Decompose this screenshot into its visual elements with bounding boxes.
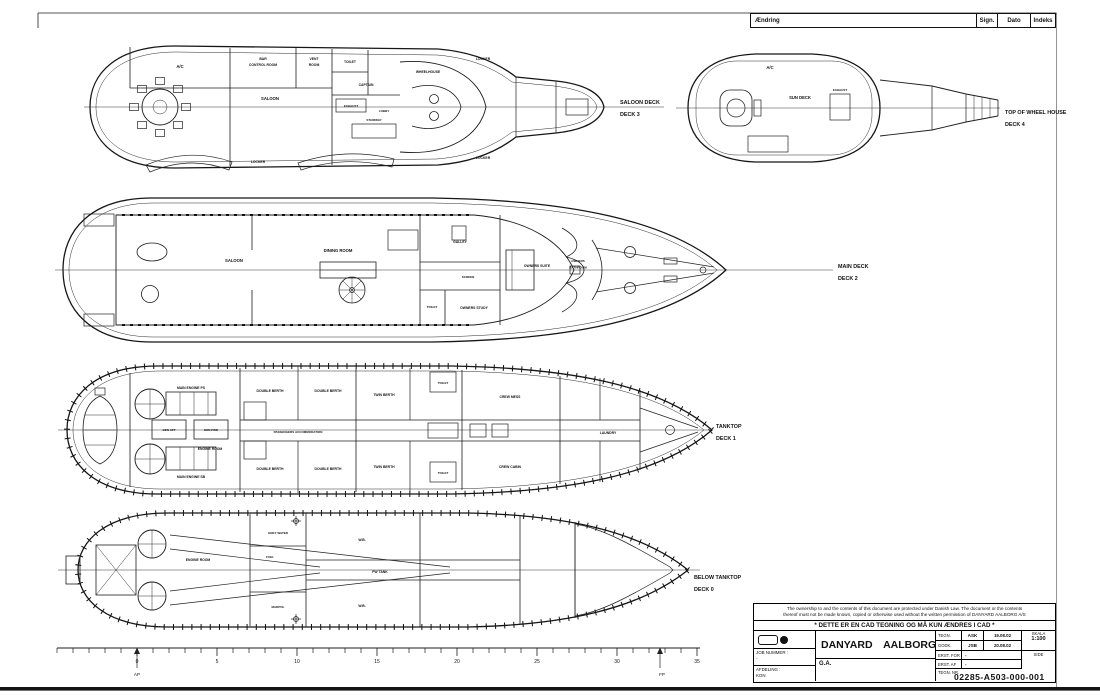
locker-box [470, 424, 486, 437]
deck1-number: DECK 1 [716, 436, 736, 442]
deck4-number: DECK 4 [1005, 122, 1025, 128]
revision-date-header: Dato [997, 14, 1030, 27]
deck3-plan: A/C BAR CONTROL ROOM VENT ROOM SALOON TO… [90, 46, 660, 172]
room-label: CONTROL ROOM [249, 63, 277, 67]
room-label: ENGINE ROOM [186, 558, 211, 562]
ruler-number: 15 [374, 659, 380, 665]
dumbwaiter [452, 226, 466, 240]
room-label: TOILET [427, 305, 438, 309]
ruler-number: 30 [614, 659, 620, 665]
erst-af-value: - [962, 662, 1021, 667]
drawing-number-field: TEGN. NR. 02285-A503-000-001 [936, 669, 1055, 681]
room-label: A/C [176, 64, 183, 69]
tegn-initials: ASK [962, 631, 984, 640]
cabin-toilet [244, 402, 266, 420]
room-label: PASSENGERS ACCOMMODATION [274, 430, 323, 434]
room-label: ENGINE ROOM [198, 447, 223, 451]
room-label: GEN FWD [204, 428, 219, 432]
erst-for-label: ERST. FOR [936, 651, 962, 659]
tank-label: W.B. [358, 604, 365, 608]
room-label: MAIN ENGINE PS [177, 386, 206, 390]
scale-ruler: 0 5 10 15 20 25 30 35 AP FP [57, 648, 700, 678]
deck4-exhaust-casing [830, 94, 850, 120]
title-block: The ownership to and the contents of thi… [753, 603, 1056, 683]
ruler-number: 5 [216, 659, 219, 665]
room-label: MAIN ENGINE SB [177, 475, 206, 479]
room-label: OWNERS [571, 259, 585, 263]
erst-for-row: ERST. FOR - [936, 651, 1021, 660]
fp-marker: FP [657, 648, 665, 678]
cabin-toilet [244, 441, 266, 459]
deck1-name: TANKTOP [716, 424, 742, 430]
room-label: OWNERS SUITE [524, 264, 551, 268]
room-label: LOCKER [251, 160, 266, 164]
room-label: LOCKER [476, 57, 491, 61]
deck0-name: BELOW TANKTOP [694, 575, 742, 581]
ruler-number: 10 [294, 659, 300, 665]
deck3-number: DECK 3 [620, 112, 640, 118]
tank-label: FW TANK [372, 570, 388, 574]
room-label: VENT [309, 57, 319, 61]
tegn-date: 19.08.02 [984, 633, 1021, 638]
ap-label: AP [134, 672, 140, 677]
room-label: SUN DECK [789, 95, 811, 100]
tank-label: W.B. [358, 538, 365, 542]
tank-label: FUEL [266, 555, 274, 559]
deck3-stair [352, 124, 396, 138]
ruler-minor-ticks [57, 648, 681, 653]
logo-dot-icon [780, 636, 788, 644]
erst-af-label: ERST. AF [936, 660, 962, 668]
room-label: EXHAUST [833, 88, 848, 92]
erst-for-value: - [962, 653, 1021, 658]
room-label: DOUBLE BERTH [257, 467, 284, 471]
copyright-line2: thereof must not be made known, copied o… [754, 612, 1055, 618]
room-label: SALOON [261, 96, 279, 101]
room-label: LOCKER [476, 156, 491, 160]
ruler-number: 35 [694, 659, 700, 665]
deck3-aft-stair-port [146, 155, 232, 172]
copyright-notice: The ownership to and the contents of thi… [754, 604, 1055, 621]
room-label: CREW MESS [500, 395, 522, 399]
cad-note: * DETTE ER EN CAD TEGNING OG MÅ KUN ÆNDR… [754, 621, 1055, 631]
deck3-fwd-stair [298, 154, 394, 170]
spiral-stair [339, 277, 365, 303]
aft-lounge-table [137, 243, 167, 261]
godk-row: GODK. JSB 20.08.02 [936, 641, 1021, 651]
side-label: SIDE [1022, 651, 1055, 669]
drawing-number-value: 02285-A503-000-001 [954, 672, 1045, 682]
deck3-name: SALOON DECK [620, 100, 660, 106]
deck2-number: DECK 2 [838, 276, 858, 282]
tegn-label: TEGN. [936, 631, 962, 640]
room-label: STAIRWAY [366, 118, 381, 122]
godk-date: 20.08.02 [984, 643, 1021, 648]
room-label: BATHROOM [569, 266, 587, 270]
job-number-field: JOB NUMMER : - [754, 649, 815, 666]
deck4-stair [748, 136, 788, 152]
room-label: TOILET [438, 381, 449, 385]
ga-drawing: A/C BAR CONTROL ROOM VENT ROOM SALOON TO… [0, 0, 1100, 700]
pilot-chair [430, 95, 439, 104]
deck4-name: TOP OF WHEEL HOUSE [1005, 110, 1067, 116]
tegn-row: TEGN. ASK 19.08.02 [936, 631, 1021, 641]
room-label: OWNERS STUDY [460, 306, 488, 310]
room-label: EXHAUST [344, 104, 359, 108]
revision-index-header: Indeks [1030, 14, 1055, 27]
scale-value: 1:100 [1022, 636, 1055, 642]
deck4-labels: A/C SUN DECK EXHAUST [766, 65, 847, 100]
ruler-major-ticks [137, 648, 697, 656]
title-block-right-column: TEGN. ASK 19.08.02 GODK. JSB 20.08.02 ER… [936, 631, 1055, 681]
room-label: TWIN BERTH [373, 465, 395, 469]
deck2-labels: SALOON DINING ROOM GALLEY SCREEN OWNERS … [225, 240, 587, 310]
company-name: DANYARD AALBORG [816, 631, 935, 659]
bottom-border-bar [0, 687, 1100, 691]
room-label: LAUNDRY [600, 431, 617, 435]
department-field: AFDELING : KON [754, 666, 815, 682]
room-label: ROOM [309, 63, 320, 67]
room-label: GALLEY [453, 240, 467, 244]
room-label: DOUBLE BERTH [315, 467, 342, 471]
room-label: BAR [259, 57, 267, 61]
room-label: A/C [766, 65, 773, 70]
room-label: TOILET [344, 60, 357, 64]
locker-box [492, 424, 508, 437]
pilot-chair [430, 112, 439, 121]
sheet-border [0, 13, 1100, 691]
ruler-number: 20 [454, 659, 460, 665]
tank-label: MARPOL [272, 605, 285, 609]
tender-boat [83, 388, 117, 464]
room-label: DOUBLE BERTH [257, 389, 284, 393]
room-label: WHEELHOUSE [416, 70, 441, 74]
danyard-logo [754, 631, 815, 649]
godk-label: GODK. [936, 641, 962, 650]
department-value: KON [756, 673, 815, 679]
room-label: DOUBLE BERTH [315, 389, 342, 393]
room-label: SALOON [225, 258, 243, 263]
deck2-name: MAIN DECK [838, 264, 869, 270]
room-label: LOBBY [379, 109, 390, 113]
erst-af-row: ERST. AF - [936, 660, 1021, 669]
logo-rect-icon [758, 635, 778, 645]
revision-sign-header: Sign. [976, 14, 997, 27]
drawing-type: G.A. [816, 659, 935, 681]
deck0-number: DECK 0 [694, 587, 714, 593]
ruler-number: 25 [534, 659, 540, 665]
aft-lounge-seat [142, 286, 159, 303]
room-label: DINING ROOM [324, 248, 353, 253]
godk-initials: JSB [962, 641, 984, 650]
title-block-left-column: JOB NUMMER : - AFDELING : KON [754, 631, 816, 681]
tank-label: GREY WATER [268, 531, 289, 535]
deck1-stair [428, 423, 458, 438]
room-label: CAPTAIN [359, 83, 374, 87]
title-block-middle-column: DANYARD AALBORG G.A. [816, 631, 936, 681]
fp-label: FP [659, 672, 665, 677]
centerlines [55, 107, 1000, 570]
deck2-stair [388, 230, 418, 250]
room-label: TWIN BERTH [373, 393, 395, 397]
room-label: GEN AFT [162, 428, 175, 432]
job-number-value: - [756, 656, 815, 662]
room-label: CREW CABIN [499, 465, 522, 469]
revision-change-header: Ændring [751, 18, 976, 24]
room-label: TOILET [438, 471, 449, 475]
drawing-sheet: A/C BAR CONTROL ROOM VENT ROOM SALOON TO… [0, 0, 1100, 700]
revision-table: Ændring Sign. Dato Indeks [750, 13, 1056, 28]
scale-field: SKALA 1:100 [1022, 631, 1055, 651]
room-label: SCREEN [462, 275, 475, 279]
